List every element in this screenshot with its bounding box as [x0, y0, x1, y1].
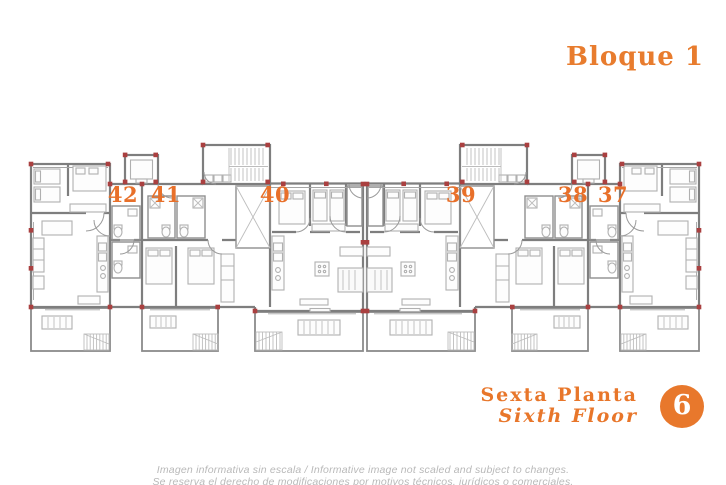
floor-number-badge: 6	[660, 385, 704, 428]
floor-label-spanish: Sexta Planta	[480, 384, 638, 406]
building-right-half	[365, 143, 702, 351]
disclaimer-line-2: Se reserva el derecho de modificaciones …	[0, 476, 726, 485]
disclaimer-line-1: Imagen informativa sin escala / Informat…	[0, 464, 726, 476]
apartment-number-40: 40	[255, 182, 295, 207]
apartment-number-41: 41	[146, 182, 186, 207]
apartment-number-39: 39	[441, 182, 481, 207]
floor-label-english: Sixth Floor	[498, 405, 638, 427]
brochure-page: Bloque 1 42 41 40 39 38 37 Sexta Planta …	[0, 0, 726, 485]
page-title: Bloque 1	[566, 42, 704, 72]
floor-number: 6	[673, 390, 692, 421]
building-left-half	[29, 143, 366, 351]
apartment-number-37: 37	[593, 182, 633, 207]
apartment-number-38: 38	[553, 182, 593, 207]
apartment-number-42: 42	[103, 182, 143, 207]
